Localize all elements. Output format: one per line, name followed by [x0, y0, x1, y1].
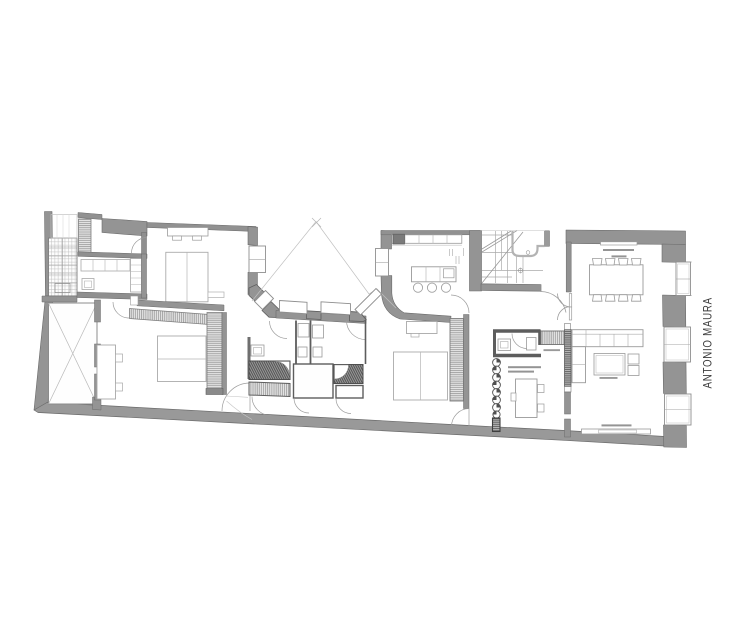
svg-text:ANTONIO MAURA: ANTONIO MAURA [701, 297, 714, 388]
